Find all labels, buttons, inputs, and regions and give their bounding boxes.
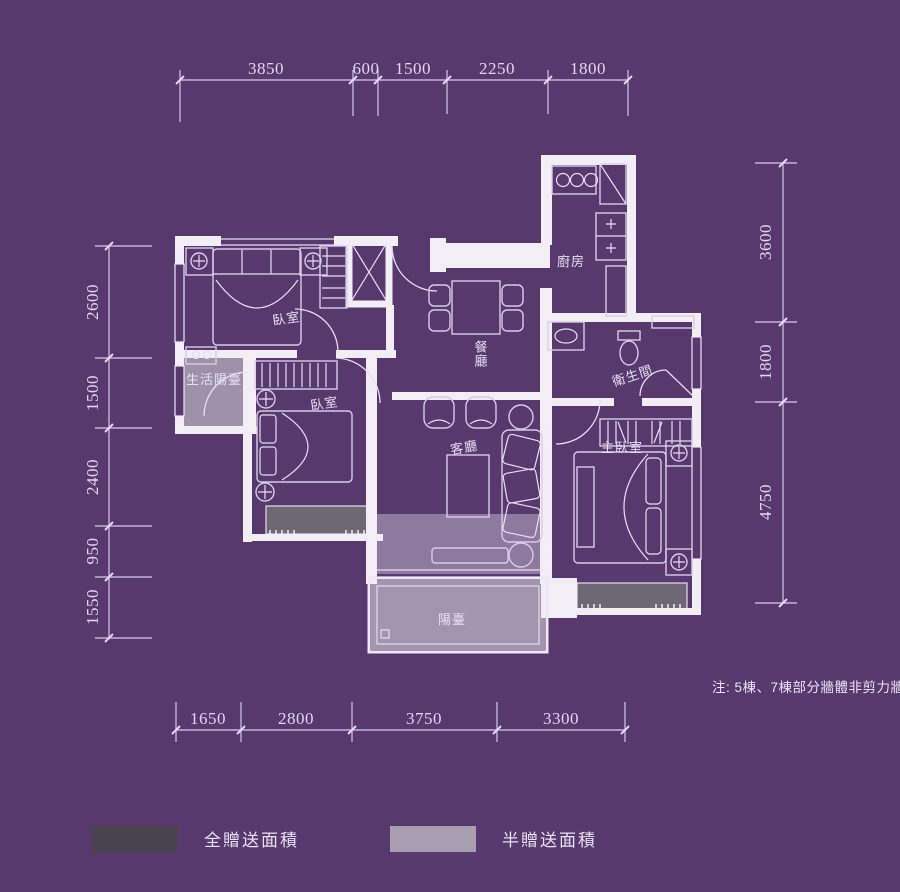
kitchen-label: 廚房 xyxy=(557,254,585,269)
dimension-left: 2600 1500 2400 950 1550 xyxy=(83,242,152,642)
dim-bottom-2: 2800 xyxy=(278,709,314,728)
bedroom1-label: 臥室 xyxy=(271,309,301,328)
kitchen-furniture xyxy=(552,164,626,316)
bed1-icon xyxy=(213,249,301,345)
legend-swatch-full-gift xyxy=(92,826,178,852)
dimension-bottom: 1650 2800 3750 3300 xyxy=(172,702,629,742)
side-table-icon xyxy=(509,405,533,429)
service-balcony-half-gift-fill xyxy=(184,354,248,426)
washbasin-icon xyxy=(548,322,584,350)
floorplan-svg: 臥室 臥室 主臥室 客廳 餐廳 廚房 衛生間 生活陽臺 陽臺 3850 600 … xyxy=(0,0,900,892)
dining-room-label: 餐廳 xyxy=(473,339,488,368)
bedroom2-label: 臥室 xyxy=(309,394,339,413)
bedroom1-furniture xyxy=(186,246,347,364)
stove-icon xyxy=(552,166,596,194)
dim-top-3: 1500 xyxy=(395,59,431,78)
dim-bottom-4: 3300 xyxy=(543,709,579,728)
legend: 全贈送面積 半贈送面積 xyxy=(92,826,597,852)
dim-top-1: 3850 xyxy=(248,59,284,78)
legend-swatch-half-gift xyxy=(390,826,476,852)
dim-right-3: 4750 xyxy=(756,484,775,520)
dresser-icon xyxy=(577,467,594,547)
service-balcony-label: 生活陽臺 xyxy=(186,372,242,387)
counter-icon xyxy=(606,266,626,316)
dim-top-2: 600 xyxy=(353,59,380,78)
wardrobe2-icon xyxy=(255,361,337,389)
dining-table-icon xyxy=(452,281,500,334)
bathroom-furniture xyxy=(548,316,694,365)
coffee-table-icon xyxy=(447,455,489,517)
master-bedroom-label: 主臥室 xyxy=(601,440,643,455)
dimension-top: 3850 600 1500 2250 1800 xyxy=(176,59,632,122)
dim-bottom-1: 1650 xyxy=(190,709,226,728)
dining-furniture xyxy=(429,281,523,334)
bedroom2-furniture xyxy=(255,361,352,501)
dim-left-1: 2600 xyxy=(83,284,102,320)
dim-top-5: 1800 xyxy=(570,59,606,78)
dim-bottom-3: 3750 xyxy=(406,709,442,728)
floorplan-page: 臥室 臥室 主臥室 客廳 餐廳 廚房 衛生間 生活陽臺 陽臺 3850 600 … xyxy=(0,0,900,892)
dimension-right: 3600 1800 4750 xyxy=(755,159,797,607)
dim-right-2: 1800 xyxy=(756,344,775,380)
legend-label-full-gift: 全贈送面積 xyxy=(204,831,299,850)
dim-top-4: 2250 xyxy=(479,59,515,78)
dim-left-2: 1500 xyxy=(83,375,102,411)
legend-label-half-gift: 半贈送面積 xyxy=(502,831,597,850)
dim-left-5: 1550 xyxy=(83,589,102,625)
dim-right-1: 3600 xyxy=(756,224,775,260)
bedroom2-bay-window-full-gift xyxy=(266,506,372,534)
dim-left-3: 2400 xyxy=(83,459,102,495)
wall-note: 注: 5棟、7棟部分牆體非剪力牆 xyxy=(712,680,900,695)
closet-shelves-icon xyxy=(320,246,347,308)
bathroom-label: 衛生間 xyxy=(610,362,655,389)
dim-left-4: 950 xyxy=(83,538,102,565)
shaft-box xyxy=(349,240,389,304)
balcony-label: 陽臺 xyxy=(438,612,466,627)
toilet-icon xyxy=(618,331,640,340)
